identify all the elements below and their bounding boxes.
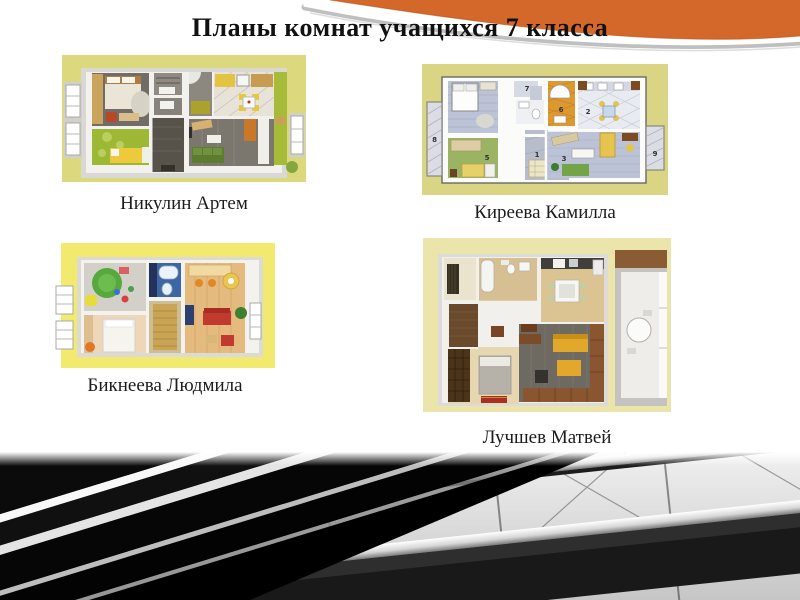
bedroom-area — [84, 315, 146, 353]
room-number-label: 2 — [586, 108, 591, 116]
plan-card-luchshev: Лучшев Матвей — [423, 238, 671, 449]
bedroom-area — [448, 347, 519, 404]
plan-caption-nikulin: Никулин Артем — [120, 193, 248, 215]
bathroom-area — [149, 263, 181, 297]
bush-decoration — [286, 161, 298, 173]
floor-plan-image-nikulin — [62, 55, 306, 182]
presentation-slide: Планы комнат учащихся 7 класса — [0, 0, 800, 600]
building-photo — [0, 452, 800, 600]
balcony-area — [615, 250, 667, 406]
plan-card-nikulin: Никулин Артем — [62, 55, 306, 215]
kids-room-area — [84, 263, 146, 311]
room-number-label: 8 — [432, 136, 437, 144]
plan-caption-luchshev: Лучшев Матвей — [483, 427, 612, 449]
bathroom-area — [479, 258, 537, 303]
room-number-label: 9 — [653, 150, 658, 158]
living-room-area — [185, 263, 247, 353]
floor-plan-image-kireeva: 7 6 2 8 5 1 3 9 — [422, 64, 668, 195]
room-number-label: 7 — [525, 85, 530, 93]
floor-plan-image-luchshev — [423, 238, 671, 412]
plan-caption-bikneeva: Бикнеева Людмила — [87, 375, 242, 397]
room-number-label: 1 — [535, 151, 540, 159]
kids-room-area — [92, 129, 151, 165]
living-room-area — [519, 324, 604, 402]
living-room-area — [189, 119, 274, 166]
plan-caption-kireeva: Киреева Камилла — [474, 202, 616, 224]
room-number-label: 3 — [562, 155, 567, 163]
slide-title: Планы комнат учащихся 7 класса — [0, 13, 800, 43]
kitchen-area — [214, 72, 274, 117]
plan-card-kireeva: 7 6 2 8 5 1 3 9 Киреева Камилла — [422, 64, 668, 224]
floor-plan-image-bikneeva — [55, 243, 275, 368]
room-number-label: 6 — [559, 106, 564, 114]
kitchen-area — [541, 258, 604, 322]
bedroom-area — [92, 73, 151, 126]
plan-card-bikneeva: Бикнеева Людмила — [55, 243, 275, 397]
room-number-label: 5 — [485, 154, 490, 162]
